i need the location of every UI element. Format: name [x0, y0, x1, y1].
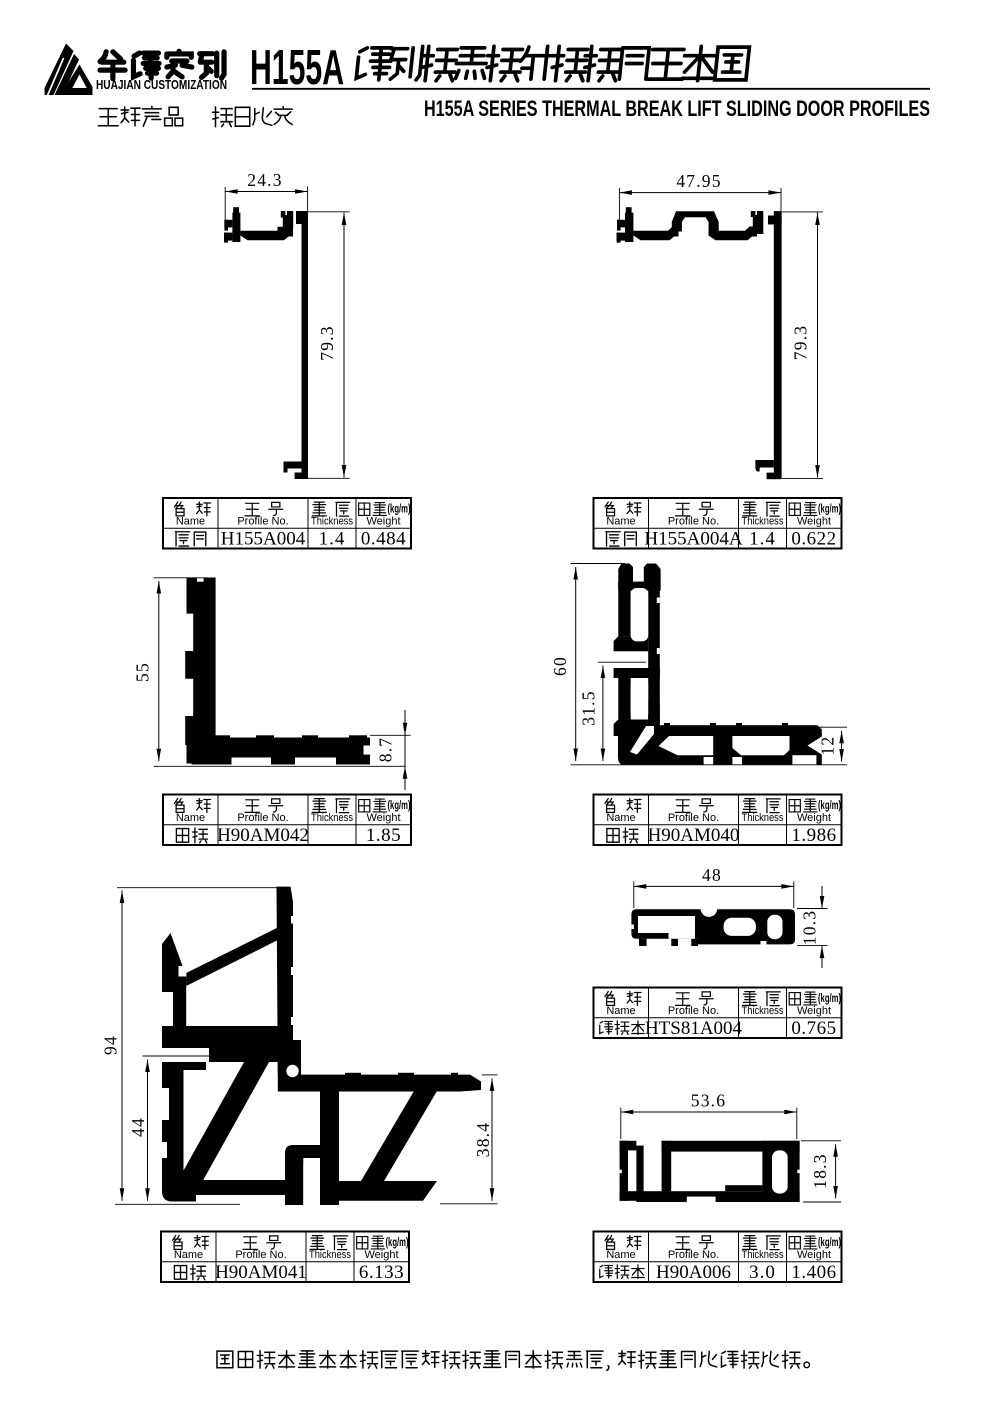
svg-text:H155A SERIES THERMAL BREAK LIF: H155A SERIES THERMAL BREAK LIFT SLIDING … — [424, 96, 930, 121]
svg-text:Thickness: Thickness — [742, 1005, 784, 1017]
svg-text:Thickness: Thickness — [742, 516, 784, 528]
svg-text:(kg/m): (kg/m) — [386, 1237, 409, 1249]
svg-text:94: 94 — [101, 1035, 121, 1055]
svg-text:H155A004: H155A004 — [221, 528, 306, 549]
svg-text:H90AM041: H90AM041 — [215, 1262, 307, 1283]
svg-text:H90AM042: H90AM042 — [217, 825, 309, 846]
svg-text:H90A006: H90A006 — [656, 1262, 731, 1283]
svg-text:Profile No.: Profile No. — [668, 1005, 719, 1017]
svg-text:0.622: 0.622 — [791, 528, 836, 549]
svg-text:Profile No.: Profile No. — [668, 1249, 719, 1261]
svg-text:55: 55 — [133, 662, 153, 682]
svg-text:Weight: Weight — [797, 1249, 831, 1261]
svg-text:Weight: Weight — [797, 1005, 831, 1017]
svg-text:47.95: 47.95 — [676, 171, 721, 191]
svg-text:Name: Name — [606, 1005, 635, 1017]
svg-text:1.406: 1.406 — [791, 1262, 836, 1283]
svg-text:0.484: 0.484 — [361, 528, 406, 549]
svg-text:31.5: 31.5 — [579, 690, 599, 725]
svg-text:Name: Name — [176, 516, 205, 528]
svg-text:HTS81A004: HTS81A004 — [645, 1018, 743, 1039]
svg-text:3.0: 3.0 — [749, 1262, 776, 1283]
svg-text:48: 48 — [702, 865, 722, 885]
svg-text:79.3: 79.3 — [317, 325, 337, 360]
svg-text:Profile No.: Profile No. — [237, 812, 288, 824]
svg-text:H155A004A: H155A004A — [644, 528, 742, 549]
svg-text:1.85: 1.85 — [366, 825, 401, 846]
svg-text:H90AM040: H90AM040 — [648, 825, 740, 846]
svg-text:44: 44 — [128, 1117, 148, 1137]
svg-text:60: 60 — [550, 656, 570, 676]
svg-text:Name: Name — [176, 812, 205, 824]
svg-text:18.3: 18.3 — [810, 1153, 830, 1188]
svg-text:8.7: 8.7 — [376, 737, 396, 762]
svg-text:(kg/m): (kg/m) — [388, 800, 411, 812]
svg-text:Name: Name — [606, 516, 635, 528]
svg-text:0.765: 0.765 — [791, 1018, 836, 1039]
svg-text:Profile No.: Profile No. — [668, 516, 719, 528]
svg-text:Weight: Weight — [797, 812, 831, 824]
svg-text:24.3: 24.3 — [247, 170, 282, 190]
svg-text:(kg/m): (kg/m) — [818, 800, 841, 812]
svg-text:(kg/m): (kg/m) — [818, 504, 841, 516]
svg-text:1.4: 1.4 — [319, 528, 346, 549]
svg-text:10.3: 10.3 — [800, 910, 820, 945]
svg-text:12: 12 — [818, 736, 838, 756]
svg-text:1.986: 1.986 — [791, 825, 836, 846]
svg-text:Thickness: Thickness — [309, 1249, 351, 1261]
svg-text:Thickness: Thickness — [742, 1249, 784, 1261]
svg-text:H155A: H155A — [250, 41, 344, 95]
svg-text:38.4: 38.4 — [473, 1122, 493, 1157]
svg-text:(kg/m): (kg/m) — [818, 993, 841, 1005]
svg-text:Name: Name — [606, 812, 635, 824]
svg-text:Weight: Weight — [364, 1249, 398, 1261]
svg-text:Weight: Weight — [366, 516, 400, 528]
svg-text:HUAJIAN CUSTOMIZATION: HUAJIAN CUSTOMIZATION — [96, 78, 227, 92]
svg-text:(kg/m): (kg/m) — [388, 504, 411, 516]
svg-text:Thickness: Thickness — [311, 516, 353, 528]
svg-text:79.3: 79.3 — [791, 325, 811, 360]
svg-text:Weight: Weight — [797, 516, 831, 528]
svg-text:6.133: 6.133 — [359, 1262, 404, 1283]
svg-text:53.6: 53.6 — [691, 1091, 726, 1111]
svg-text:1.4: 1.4 — [749, 528, 776, 549]
svg-text:Profile No.: Profile No. — [237, 516, 288, 528]
svg-text:Name: Name — [606, 1249, 635, 1261]
svg-text:Thickness: Thickness — [742, 812, 784, 824]
svg-text:Profile No.: Profile No. — [668, 812, 719, 824]
svg-text:Name: Name — [174, 1249, 203, 1261]
svg-text:Weight: Weight — [366, 812, 400, 824]
svg-text:(kg/m): (kg/m) — [818, 1237, 841, 1249]
svg-text:Thickness: Thickness — [311, 812, 353, 824]
svg-text:Profile No.: Profile No. — [235, 1249, 286, 1261]
